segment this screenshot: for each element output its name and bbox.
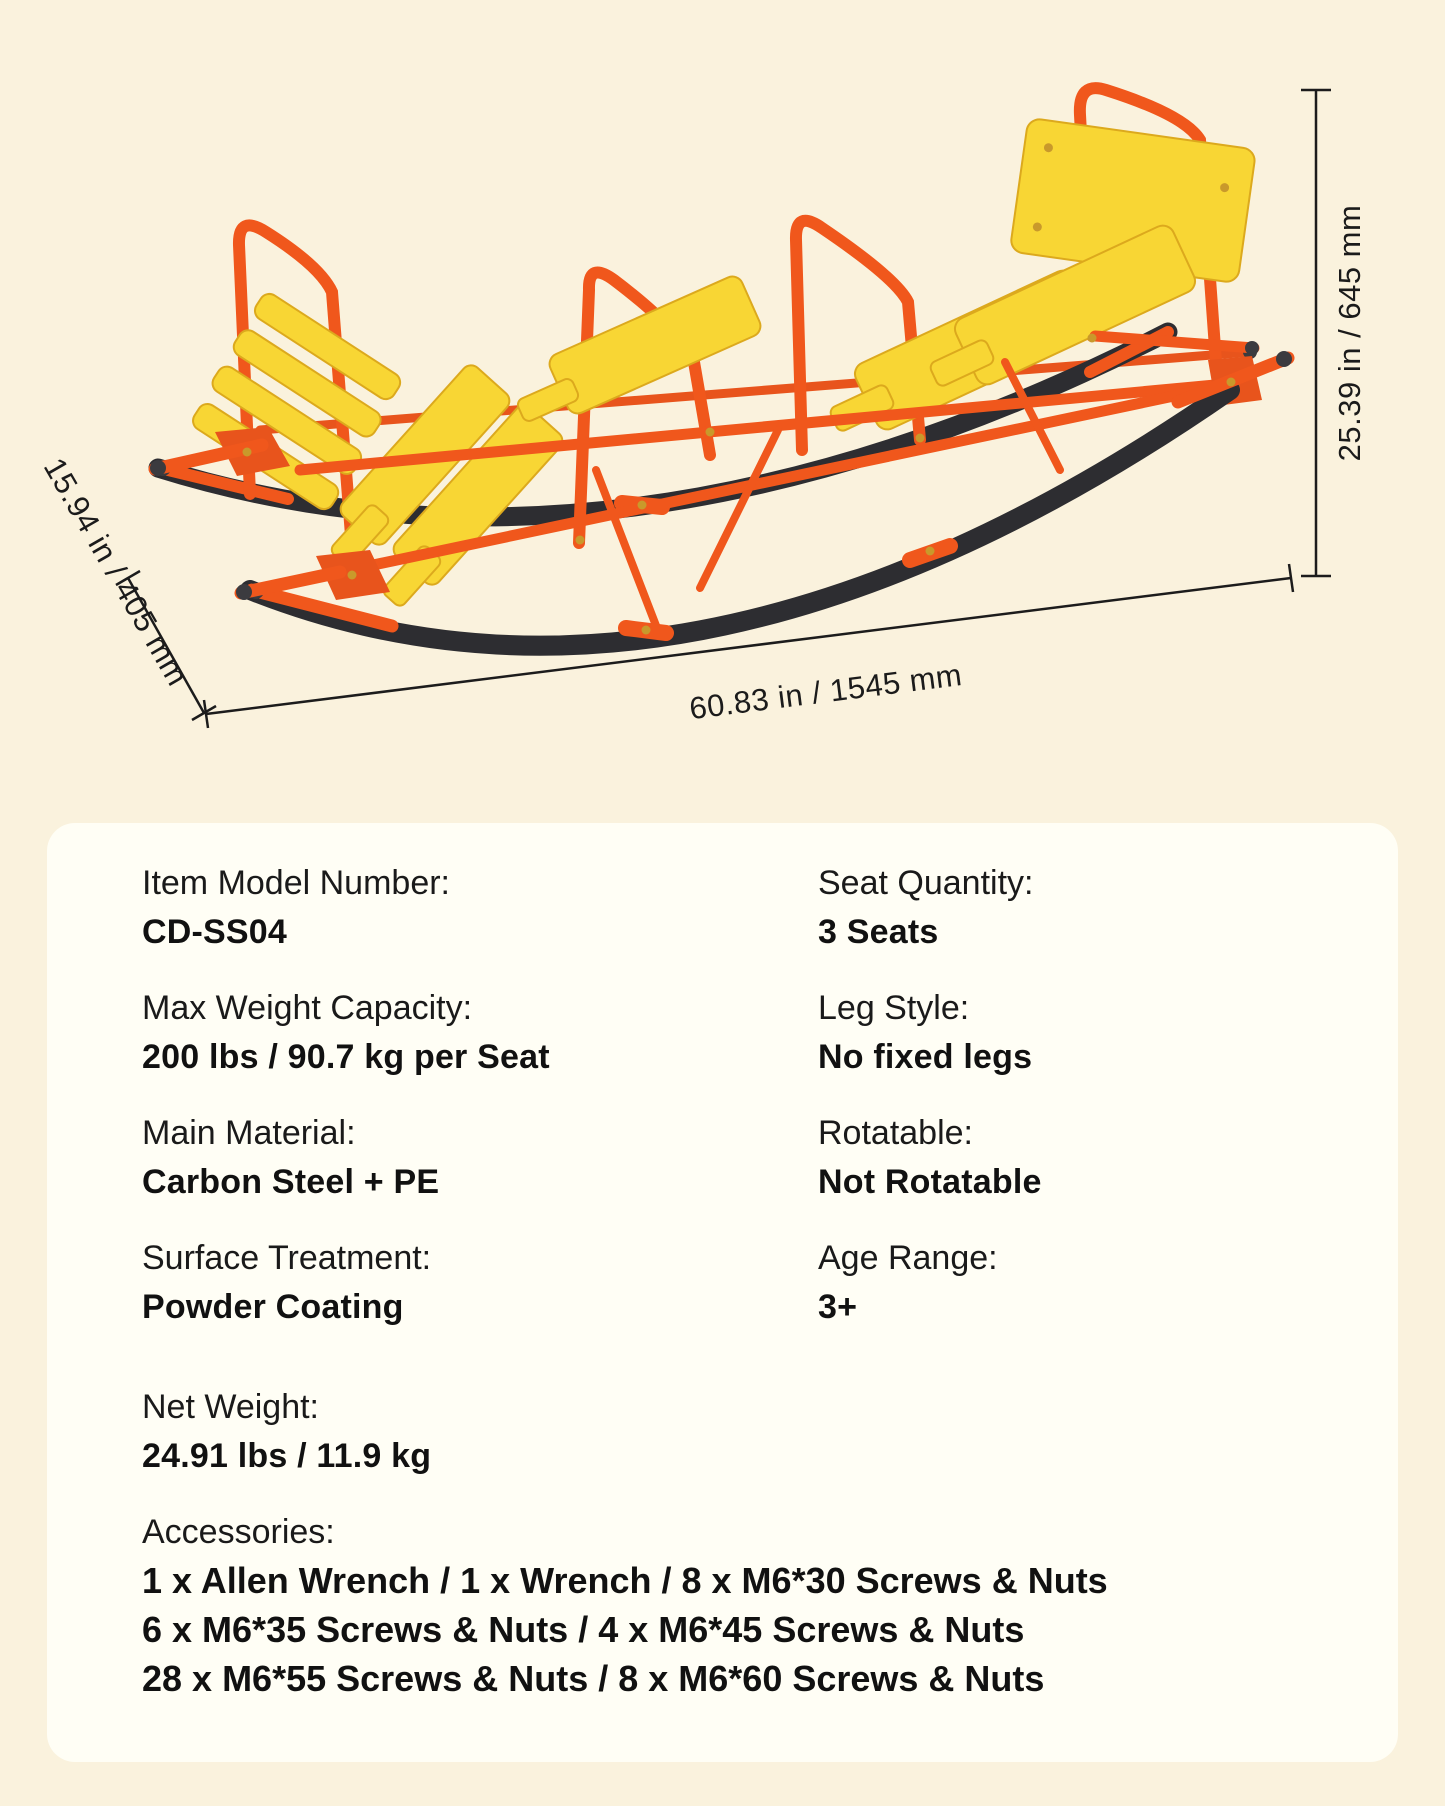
spec-grid: Item Model Number: CD-SS04 Seat Quantity… [142, 859, 1358, 1359]
spec-label: Max Weight Capacity: [142, 984, 818, 1032]
accessory-line: 6 x M6*35 Screws & Nuts / 4 x M6*45 Scre… [142, 1605, 1358, 1654]
spec-item-surface-treatment: Surface Treatment: Powder Coating [142, 1234, 818, 1332]
dimension-label-length: 60.83 in / 1545 mm [687, 657, 964, 726]
spec-item-accessories: Accessories: 1 x Allen Wrench / 1 x Wren… [142, 1508, 1358, 1703]
spec-label: Age Range: [818, 1234, 1358, 1282]
spec-item-max-weight: Max Weight Capacity: 200 lbs / 90.7 kg p… [142, 984, 818, 1082]
spec-item-rotatable: Rotatable: Not Rotatable [818, 1109, 1358, 1207]
spec-value: Carbon Steel + PE [142, 1157, 818, 1207]
dimension-line-height [1301, 90, 1331, 576]
spec-item-model-number: Item Model Number: CD-SS04 [142, 859, 818, 957]
dimension-label-height: 25.39 in / 645 mm [1332, 205, 1367, 462]
spec-item-net-weight: Net Weight: 24.91 lbs / 11.9 kg [142, 1383, 1358, 1481]
spec-label: Item Model Number: [142, 859, 818, 907]
spec-value: Powder Coating [142, 1282, 818, 1332]
spec-label: Rotatable: [818, 1109, 1358, 1157]
spec-item-seat-quantity: Seat Quantity: 3 Seats [818, 859, 1358, 957]
spec-value: 3+ [818, 1282, 1358, 1332]
product-illustration: 25.39 in / 645 mm 60.83 in / 1545 mm 15.… [0, 0, 1445, 780]
spec-value: 3 Seats [818, 907, 1358, 957]
spec-value: CD-SS04 [142, 907, 818, 957]
spec-item-main-material: Main Material: Carbon Steel + PE [142, 1109, 818, 1207]
spec-value: 24.91 lbs / 11.9 kg [142, 1431, 1358, 1481]
accessory-line: 1 x Allen Wrench / 1 x Wrench / 8 x M6*3… [142, 1556, 1358, 1605]
spec-label: Accessories: [142, 1508, 1358, 1556]
spec-value: No fixed legs [818, 1032, 1358, 1082]
accessory-line: 28 x M6*55 Screws & Nuts / 8 x M6*60 Scr… [142, 1654, 1358, 1703]
spec-panel: Item Model Number: CD-SS04 Seat Quantity… [47, 823, 1398, 1762]
spec-item-age-range: Age Range: 3+ [818, 1234, 1358, 1332]
spec-label: Main Material: [142, 1109, 818, 1157]
spec-item-leg-style: Leg Style: No fixed legs [818, 984, 1358, 1082]
dimension-label-depth: 15.94 in / 405 mm [37, 452, 196, 692]
spec-label: Net Weight: [142, 1383, 1358, 1431]
spec-label: Surface Treatment: [142, 1234, 818, 1282]
spec-label: Leg Style: [818, 984, 1358, 1032]
spec-value: 200 lbs / 90.7 kg per Seat [142, 1032, 818, 1082]
spec-value: Not Rotatable [818, 1157, 1358, 1207]
spec-label: Seat Quantity: [818, 859, 1358, 907]
product-spec-sheet: 25.39 in / 645 mm 60.83 in / 1545 mm 15.… [0, 0, 1445, 1806]
